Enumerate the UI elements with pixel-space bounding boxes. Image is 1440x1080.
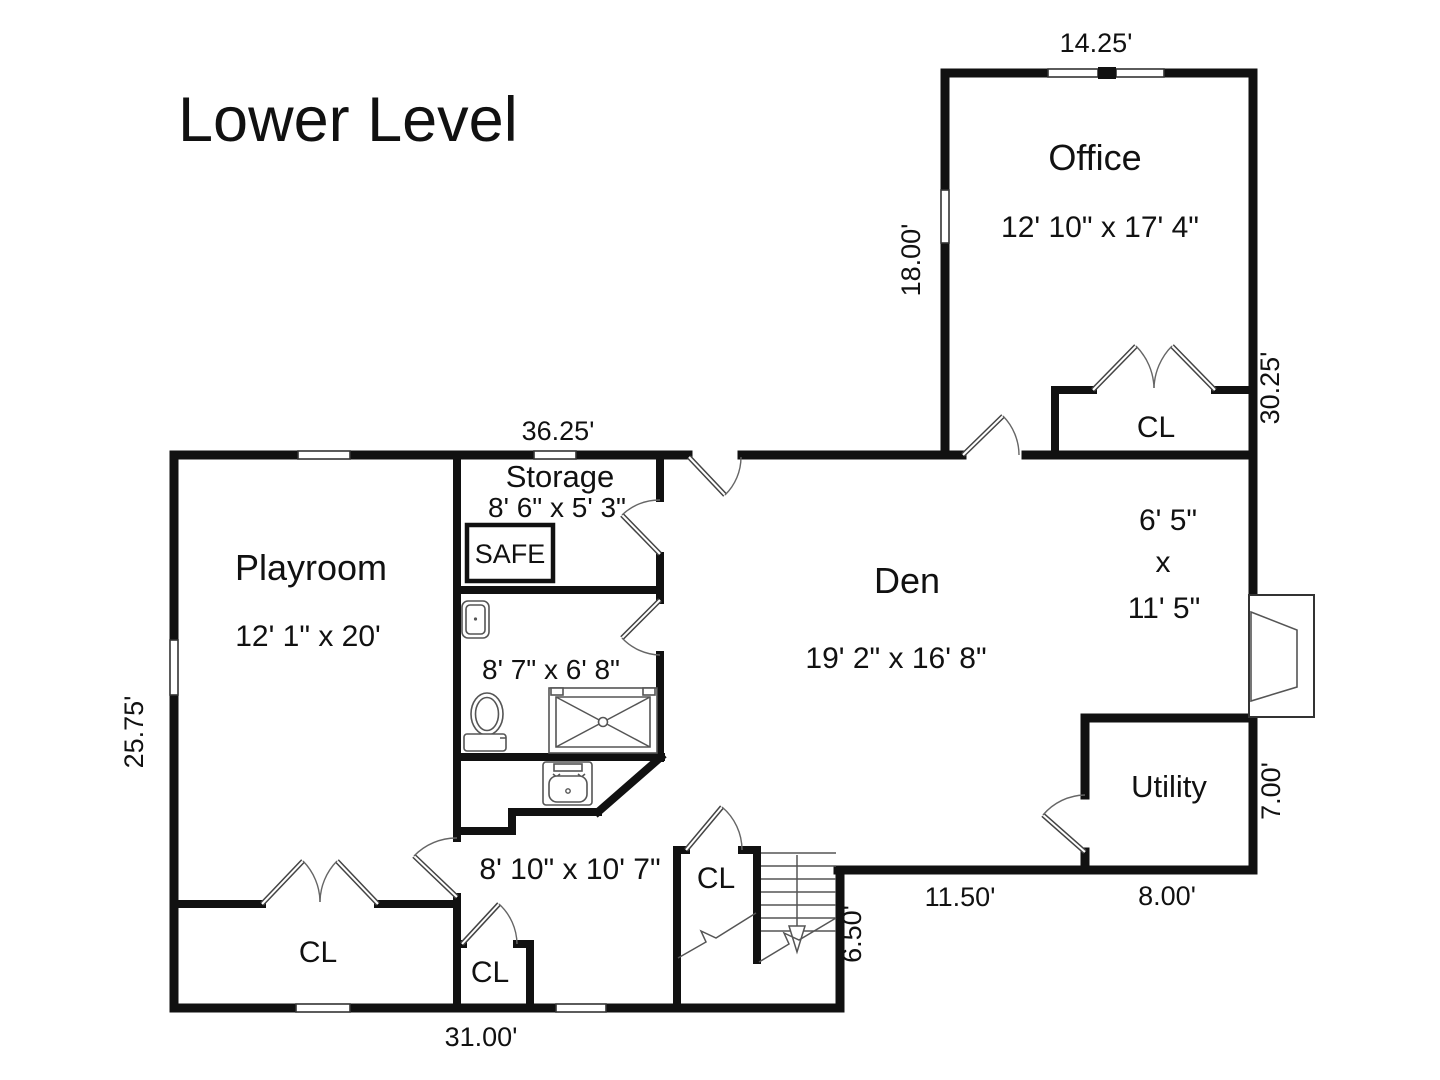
bonus-closet-label: CL bbox=[471, 956, 509, 989]
doors bbox=[262, 346, 1215, 944]
den-dims: 19' 2" x 16' 8" bbox=[805, 642, 986, 675]
window bbox=[556, 1004, 606, 1012]
window bbox=[296, 1004, 350, 1012]
window bbox=[1116, 69, 1164, 77]
storage-dims: 8' 6" x 5' 3" bbox=[488, 492, 626, 523]
safe-box: SAFE bbox=[467, 525, 553, 581]
dim-left-side: 25.75' bbox=[119, 696, 149, 769]
window bbox=[170, 640, 178, 695]
window bbox=[1048, 69, 1098, 77]
dim-right-upper: 30.25' bbox=[1255, 352, 1285, 425]
bathroom-dims: 8' 7" x 6' 8" bbox=[482, 654, 620, 685]
utility-door bbox=[1043, 795, 1085, 852]
dim-bottom: 31.00' bbox=[445, 1022, 518, 1052]
room-labels: Office 12' 10" x 17' 4" Den 19' 2" x 16'… bbox=[235, 137, 1207, 886]
alcove-depth: 11' 5" bbox=[1128, 592, 1201, 625]
window bbox=[298, 451, 350, 459]
storage-label: Storage bbox=[506, 459, 615, 494]
toilet-icon bbox=[464, 693, 506, 751]
floorplan-page: SAFE Lower Level Office 12' 10" x 17' 4"… bbox=[0, 0, 1440, 1080]
page-title: Lower Level bbox=[178, 85, 518, 155]
playroom-closet-doors bbox=[262, 861, 378, 904]
dim-office-top: 14.25' bbox=[1060, 28, 1133, 58]
utility-label: Utility bbox=[1131, 769, 1207, 804]
dim-den-bottom: 11.50' bbox=[925, 882, 996, 912]
sink-icon bbox=[543, 762, 592, 805]
playroom-dims: 12' 1" x 20' bbox=[235, 620, 381, 653]
window-mullion bbox=[1098, 67, 1116, 79]
office-label: Office bbox=[1048, 137, 1141, 178]
fireplace bbox=[1249, 595, 1314, 717]
storage-door bbox=[622, 500, 660, 554]
alcove-width: 6' 5" bbox=[1139, 504, 1197, 537]
bonus-room-door bbox=[414, 838, 457, 897]
stair-closet-door bbox=[686, 807, 742, 850]
dimension-labels: 14.25' 18.00' 30.25' 36.25' 25.75' 31.00… bbox=[119, 28, 1286, 1052]
shower-icon bbox=[549, 688, 657, 753]
closet-break-line bbox=[678, 913, 756, 958]
office-closet-label: CL bbox=[1137, 411, 1175, 444]
window bbox=[941, 190, 949, 243]
window bbox=[534, 451, 576, 459]
dim-main-top: 36.25' bbox=[522, 416, 595, 446]
dim-utility-bottom: 8.00' bbox=[1138, 881, 1196, 911]
safe-label: SAFE bbox=[475, 539, 546, 569]
office-closet-doors bbox=[1093, 346, 1215, 390]
floorplan-svg: SAFE Lower Level Office 12' 10" x 17' 4"… bbox=[0, 0, 1440, 1080]
bathroom-door bbox=[622, 600, 660, 655]
dim-office-left: 18.00' bbox=[896, 224, 926, 297]
stair-closet-label: CL bbox=[697, 862, 735, 895]
office-hall-door bbox=[963, 416, 1019, 455]
den-door bbox=[689, 457, 741, 495]
bonus-room-dims: 8' 10" x 10' 7" bbox=[479, 853, 660, 886]
bonus-closet-door bbox=[462, 904, 517, 944]
dim-utility-right: 7.00' bbox=[1256, 762, 1286, 820]
den-label: Den bbox=[874, 560, 940, 601]
cabinet-icon bbox=[462, 601, 489, 638]
office-dims: 12' 10" x 17' 4" bbox=[1001, 211, 1199, 244]
dim-stairs-right: 6.50' bbox=[837, 905, 867, 963]
alcove-sep: x bbox=[1156, 546, 1171, 579]
playroom-label: Playroom bbox=[235, 547, 387, 588]
playroom-closet-label: CL bbox=[299, 936, 337, 969]
